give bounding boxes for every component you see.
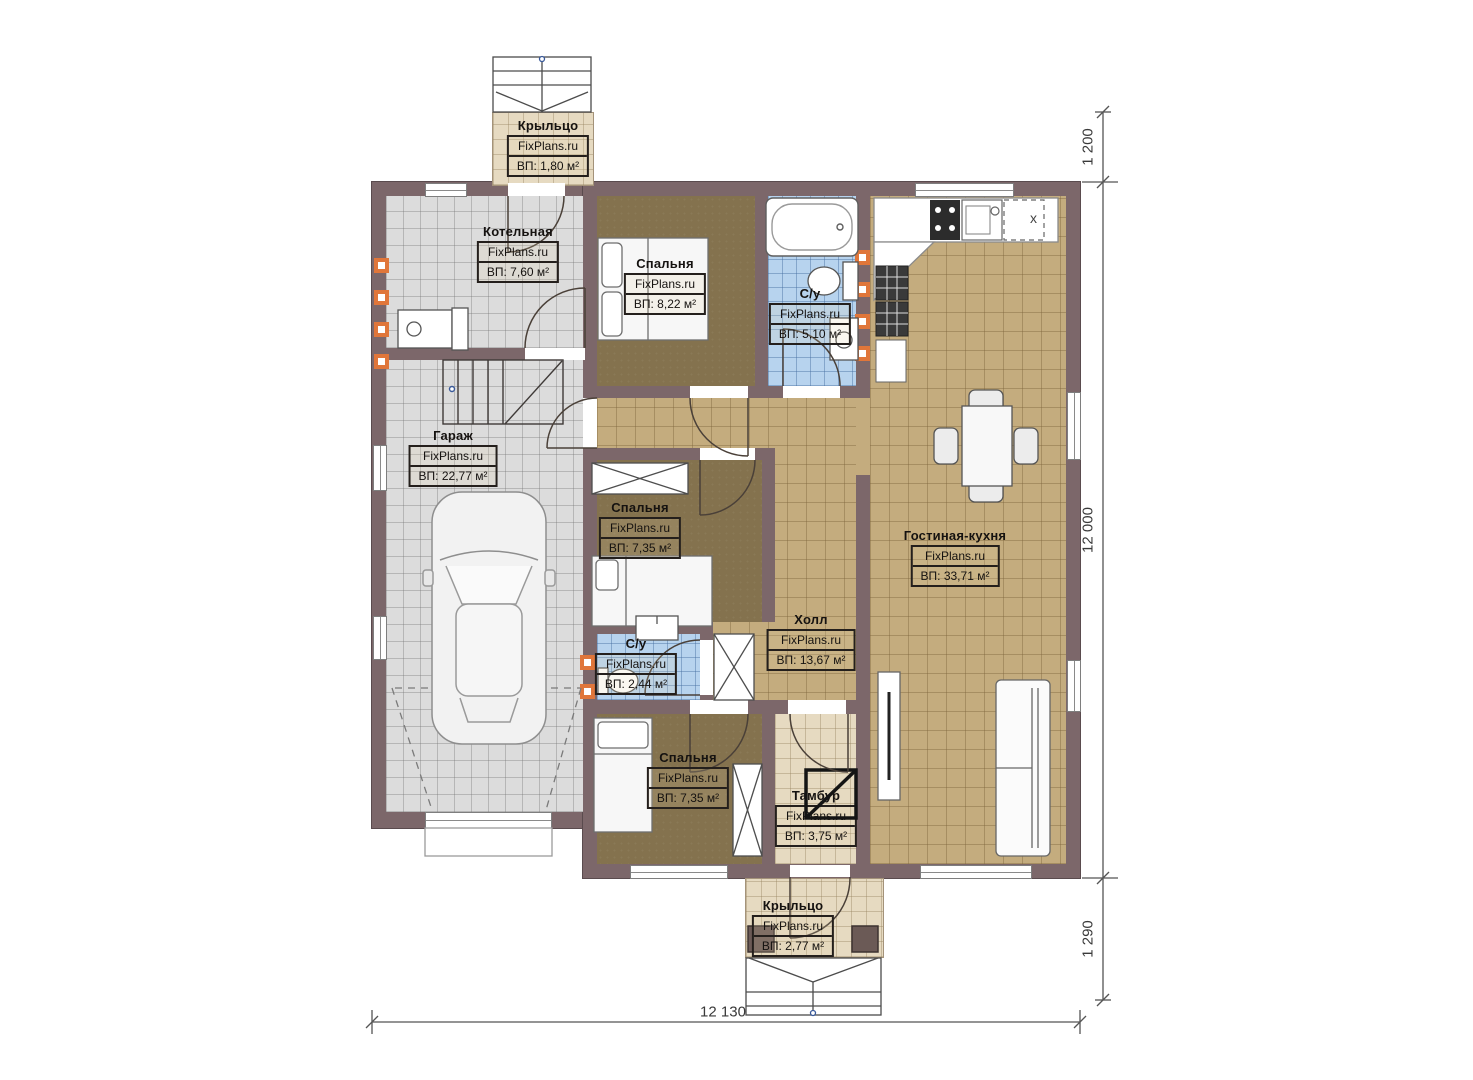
room-area: ВП: 33,71 м²	[913, 565, 998, 585]
dimension-bottom: 12 130	[700, 1004, 746, 1021]
room-name: С/у	[595, 636, 677, 651]
room-area: ВП: 13,67 м²	[769, 649, 854, 669]
wardrobe	[592, 463, 688, 494]
wardrobe	[733, 764, 762, 856]
brand-watermark: FixPlans.ru	[626, 275, 704, 293]
boiler-equipment	[398, 308, 468, 350]
room-name: Гостиная-кухня	[904, 528, 1006, 543]
bed-single	[594, 718, 652, 832]
dimension-bottom-right: 1 290	[1080, 920, 1097, 958]
room-area: ВП: 7,35 м²	[601, 537, 679, 557]
brand-watermark: FixPlans.ru	[771, 305, 849, 323]
brand-watermark: FixPlans.ru	[913, 547, 998, 565]
room-label-bedroom-3: Спальня FixPlans.ru ВП: 7,35 м²	[647, 750, 729, 809]
room-name: Спальня	[599, 500, 681, 515]
kitchen-appliances	[876, 266, 908, 382]
room-area: ВП: 1,80 м²	[509, 155, 587, 175]
brand-watermark: FixPlans.ru	[597, 655, 675, 673]
room-label-bedroom-2: Спальня FixPlans.ru ВП: 7,35 м²	[599, 500, 681, 559]
dining-table	[934, 390, 1038, 502]
floor-plan: Крыльцо FixPlans.ru ВП: 1,80 м² Котельна…	[0, 0, 1473, 1080]
plan-graphics	[0, 0, 1473, 1080]
room-name: Гараж	[409, 428, 498, 443]
entry-panel	[806, 770, 856, 818]
room-name: Котельная	[477, 224, 559, 239]
room-area: ВП: 2,44 м²	[597, 673, 675, 693]
brand-watermark: FixPlans.ru	[769, 631, 854, 649]
brand-watermark: FixPlans.ru	[754, 917, 832, 935]
dimension-top-right: 1 200	[1080, 128, 1097, 166]
brand-watermark: FixPlans.ru	[601, 519, 679, 537]
room-area: ВП: 7,60 м²	[479, 261, 557, 281]
room-label-garage: Гараж FixPlans.ru ВП: 22,77 м²	[409, 428, 498, 487]
room-label-bathroom-1: С/у FixPlans.ru ВП: 5,10 м²	[769, 286, 851, 345]
room-area: ВП: 2,77 м²	[754, 935, 832, 955]
bathtub	[766, 198, 858, 256]
brand-watermark: FixPlans.ru	[479, 243, 557, 261]
room-area: ВП: 8,22 м²	[626, 293, 704, 313]
car	[423, 492, 555, 744]
room-label-bathroom-2: С/у FixPlans.ru ВП: 2,44 м²	[595, 636, 677, 695]
room-label-bedroom-1: Спальня FixPlans.ru ВП: 8,22 м²	[624, 256, 706, 315]
stairs-bottom-porch	[746, 958, 881, 1016]
room-area: ВП: 7,35 м²	[649, 787, 727, 807]
brand-watermark: FixPlans.ru	[509, 137, 587, 155]
stairs-top-porch	[493, 57, 591, 113]
room-name: С/у	[769, 286, 851, 301]
room-name: Спальня	[647, 750, 729, 765]
room-label-porch-top: Крыльцо FixPlans.ru ВП: 1,80 м²	[507, 118, 589, 177]
brand-watermark: FixPlans.ru	[649, 769, 727, 787]
room-name: Спальня	[624, 256, 706, 271]
room-label-living-kitchen: Гостиная-кухня FixPlans.ru ВП: 33,71 м²	[904, 528, 1006, 587]
stairs-garage	[443, 360, 563, 424]
tv-stand	[878, 672, 900, 800]
brand-watermark: FixPlans.ru	[411, 447, 496, 465]
room-area: ВП: 5,10 м²	[771, 323, 849, 343]
room-label-boiler: Котельная FixPlans.ru ВП: 7,60 м²	[477, 224, 559, 283]
room-name: Крыльцо	[507, 118, 589, 133]
room-name: Крыльцо	[752, 898, 834, 913]
garage-apron	[425, 828, 552, 856]
dimension-right: 12 000	[1080, 507, 1097, 553]
room-name: Холл	[767, 612, 856, 627]
room-label-porch-bottom: Крыльцо FixPlans.ru ВП: 2,77 м²	[752, 898, 834, 957]
wardrobe	[714, 634, 754, 700]
sofa	[996, 680, 1050, 856]
kitchen-x-marker: x	[1030, 210, 1037, 226]
room-label-hall: Холл FixPlans.ru ВП: 13,67 м²	[767, 612, 856, 671]
room-area: ВП: 22,77 м²	[411, 465, 496, 485]
